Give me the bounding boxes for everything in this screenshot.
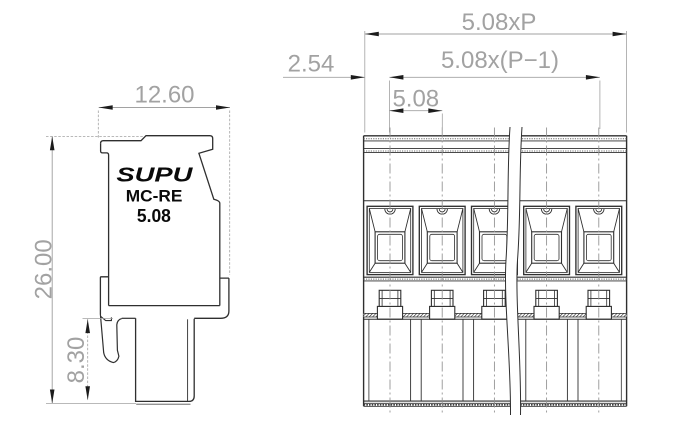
svg-text:5.08x(P−1): 5.08x(P−1) [441,47,559,74]
svg-text:SUPU: SUPU [116,165,194,187]
svg-text:5.08: 5.08 [392,85,439,112]
svg-text:8.30: 8.30 [63,337,90,384]
svg-text:2.54: 2.54 [288,51,335,78]
svg-text:MC-RE: MC-RE [126,186,183,205]
svg-text:12.60: 12.60 [134,81,194,108]
svg-text:5.08: 5.08 [137,205,171,226]
svg-text:26.00: 26.00 [30,239,57,299]
svg-text:5.08xP: 5.08xP [462,9,537,36]
